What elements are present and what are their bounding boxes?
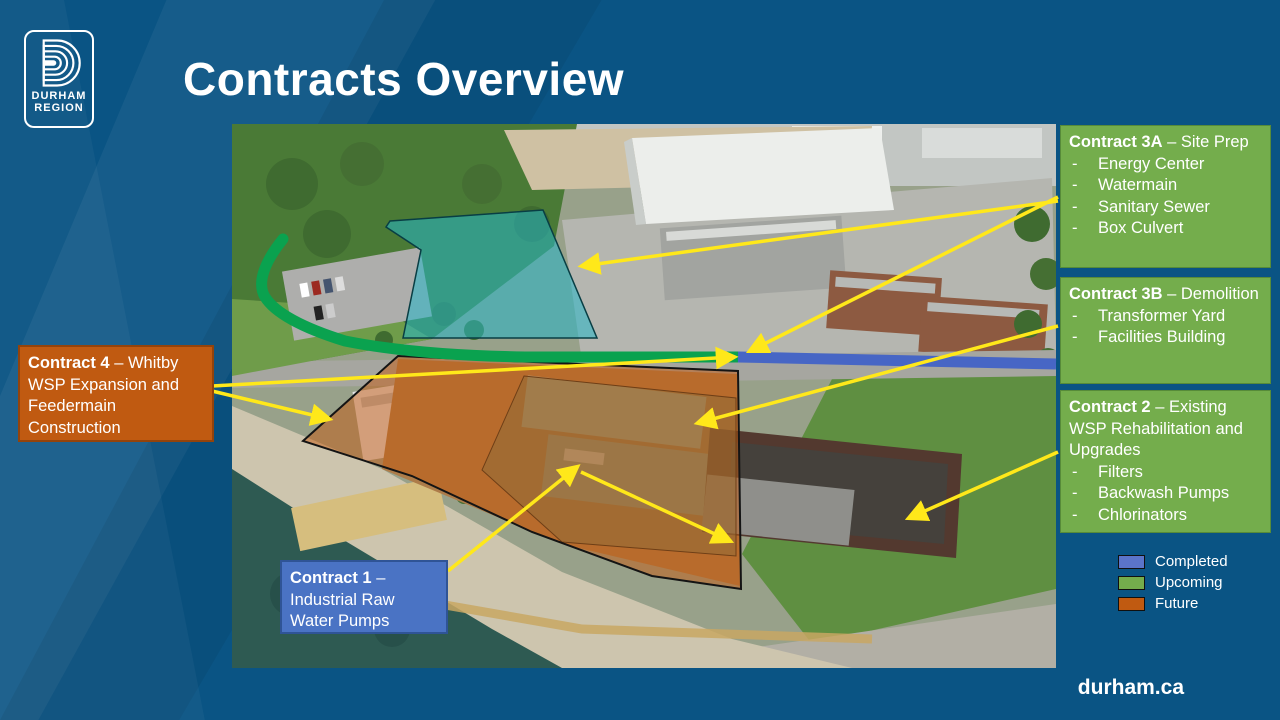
list-item-label: Facilities Building xyxy=(1098,327,1225,349)
list-item-label: Transformer Yard xyxy=(1098,306,1225,328)
list-item: -Sanitary Sewer xyxy=(1069,197,1262,219)
legend-label: Upcoming xyxy=(1155,574,1223,591)
bullet-dash: - xyxy=(1069,327,1098,349)
list-item: -Energy Center xyxy=(1069,154,1262,176)
upcoming-swatch xyxy=(1118,576,1145,590)
bullet-dash: - xyxy=(1069,197,1098,219)
list-item-label: Filters xyxy=(1098,462,1143,484)
bullet-dash: - xyxy=(1069,306,1098,328)
completed-swatch xyxy=(1118,555,1145,569)
slide-background: DURHAM REGION Contracts Overview xyxy=(0,0,1280,720)
callout-contract-4: Contract 4 – Whitby WSP Expansion and Fe… xyxy=(18,345,214,442)
logo-text-line1: DURHAM xyxy=(32,90,87,102)
logo-text-line2: REGION xyxy=(34,102,83,114)
bullet-dash: - xyxy=(1069,154,1098,176)
callout-title: Contract 4 – Whitby WSP Expansion and Fe… xyxy=(28,353,204,439)
callout-contract-3b: Contract 3B – Demolition -Transformer Ya… xyxy=(1060,277,1271,384)
list-item-label: Backwash Pumps xyxy=(1098,483,1229,505)
list-item: -Chlorinators xyxy=(1069,505,1262,527)
legend-row-completed: Completed xyxy=(1118,553,1228,570)
bullet-dash: - xyxy=(1069,175,1098,197)
callout-title: Contract 3B – Demolition xyxy=(1069,284,1262,306)
bullet-dash: - xyxy=(1069,462,1098,484)
callout-contract-3a: Contract 3A – Site Prep -Energy Center -… xyxy=(1060,125,1271,268)
durham-d-icon xyxy=(32,36,86,90)
contract-1-name: Contract 1 xyxy=(290,569,372,587)
callout-title: Contract 1 – Industrial Raw Water Pumps xyxy=(290,568,438,633)
contract-2-name: Contract 2 xyxy=(1069,398,1151,416)
list-item: -Transformer Yard xyxy=(1069,306,1262,328)
durham-region-logo: DURHAM REGION xyxy=(24,30,94,128)
legend-row-upcoming: Upcoming xyxy=(1118,574,1228,591)
contract-3a-desc: – Site Prep xyxy=(1163,133,1249,151)
future-swatch xyxy=(1118,597,1145,611)
bullet-dash: - xyxy=(1069,218,1098,240)
callout-contract-1: Contract 1 – Industrial Raw Water Pumps xyxy=(280,560,448,634)
list-item-label: Chlorinators xyxy=(1098,505,1187,527)
legend-row-future: Future xyxy=(1118,595,1228,612)
bullet-dash: - xyxy=(1069,505,1098,527)
contract-3b-desc: – Demolition xyxy=(1163,285,1259,303)
page-title: Contracts Overview xyxy=(183,52,624,106)
list-item: -Filters xyxy=(1069,462,1262,484)
list-item-label: Box Culvert xyxy=(1098,218,1183,240)
contract-3a-name: Contract 3A xyxy=(1069,133,1163,151)
callout-contract-2: Contract 2 – Existing WSP Rehabilitation… xyxy=(1060,390,1271,533)
callout-title: Contract 3A – Site Prep xyxy=(1069,132,1262,154)
durham-ca-link: durham.ca xyxy=(1078,676,1184,700)
contract-4-name: Contract 4 xyxy=(28,354,110,372)
list-item-label: Watermain xyxy=(1098,175,1177,197)
list-item-label: Sanitary Sewer xyxy=(1098,197,1210,219)
contract-3b-name: Contract 3B xyxy=(1069,285,1163,303)
legend: Completed Upcoming Future xyxy=(1118,553,1228,612)
legend-label: Future xyxy=(1155,595,1198,612)
bullet-dash: - xyxy=(1069,483,1098,505)
list-item: -Box Culvert xyxy=(1069,218,1262,240)
list-item-label: Energy Center xyxy=(1098,154,1204,176)
list-item: -Facilities Building xyxy=(1069,327,1262,349)
callout-title: Contract 2 – Existing WSP Rehabilitation… xyxy=(1069,397,1262,462)
legend-label: Completed xyxy=(1155,553,1228,570)
list-item: -Backwash Pumps xyxy=(1069,483,1262,505)
list-item: -Watermain xyxy=(1069,175,1262,197)
